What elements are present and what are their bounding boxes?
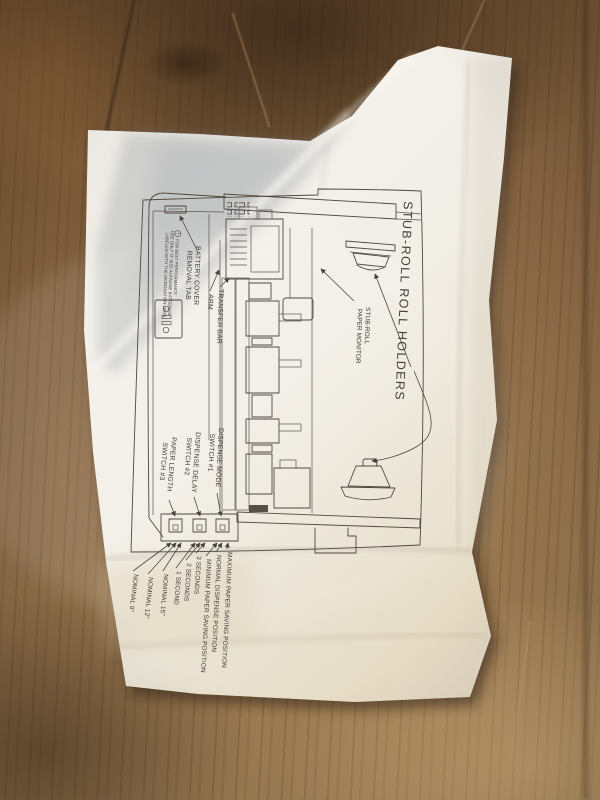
- svg-text:ARM: ARM: [206, 294, 214, 310]
- arm-label: ARM: [206, 294, 214, 310]
- svg-text:STUB-ROLL: STUB-ROLL: [363, 307, 371, 345]
- rack-end-cap: [249, 505, 268, 512]
- battery-cover-label: BATTERY COVER REMOVAL TAB: [184, 246, 201, 306]
- instruction-sheet-photo: STUB-ROLL ROLL HOLDERS BATTERY COVER REM…: [0, 0, 600, 800]
